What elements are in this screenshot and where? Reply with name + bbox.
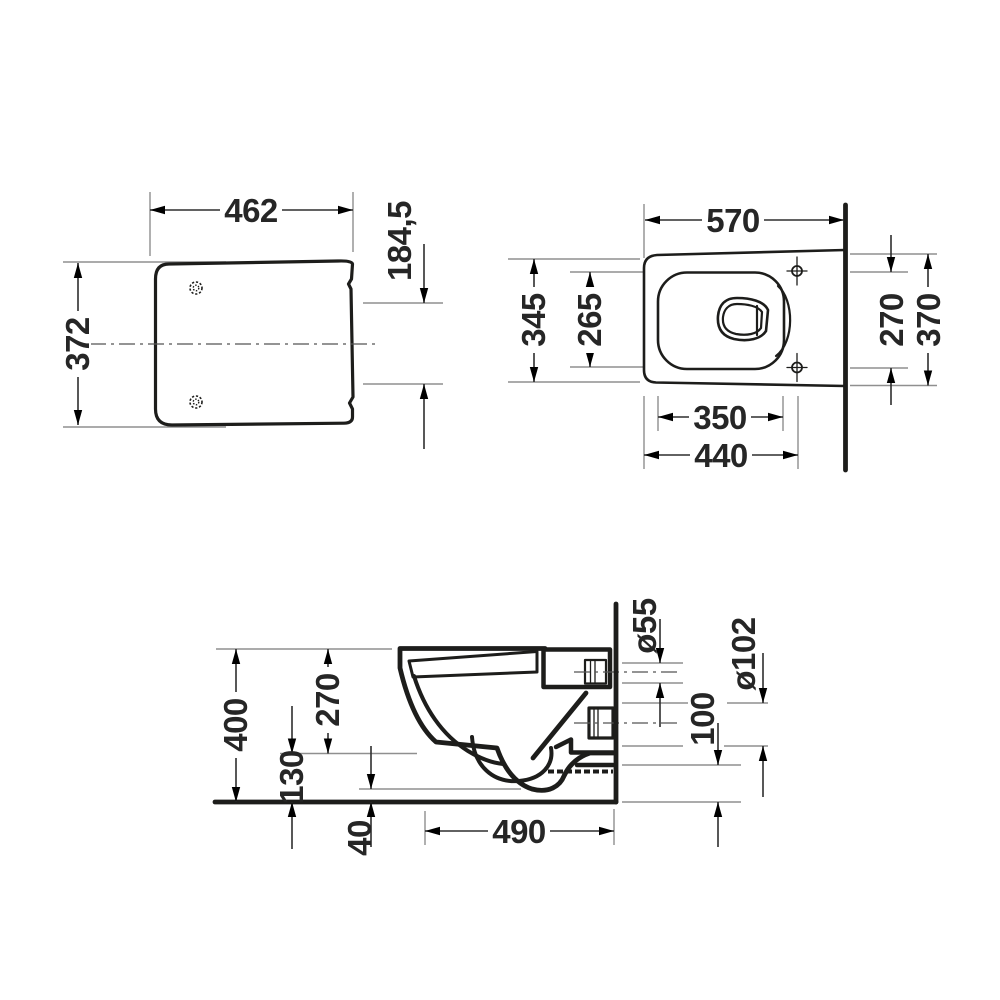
dimension-270-side: 270 [309, 649, 346, 754]
dimension-outlet-diameter: ø102 [725, 617, 767, 797]
dim-label-570: 570 [706, 202, 760, 239]
side-section-view: 400 270 130 [215, 598, 768, 856]
seat-top-view: 462 372 184,5 [59, 192, 443, 449]
dim-label-40: 40 [341, 820, 378, 856]
dim-label-o55: ø55 [626, 598, 663, 654]
dimension-440: 440 [644, 437, 798, 474]
dimension-570: 570 [645, 202, 844, 239]
dimension-400: 400 [217, 649, 254, 802]
dim-label-265: 265 [571, 293, 608, 347]
dim-label-130: 130 [273, 750, 310, 804]
dim-label-462: 462 [224, 192, 278, 229]
dim-label-440: 440 [694, 437, 748, 474]
dimension-100: 100 [684, 692, 722, 847]
bowl-top-view: 570 345 265 [508, 202, 947, 474]
dim-label-372: 372 [59, 317, 96, 371]
dimension-462: 462 [150, 192, 353, 229]
dimension-350: 350 [658, 399, 783, 436]
dim-label-184-5: 184,5 [381, 201, 418, 281]
dim-label-270: 270 [873, 293, 910, 347]
mounting-bracket [556, 740, 613, 753]
dim-label-345: 345 [515, 293, 552, 347]
technical-drawing-page: 462 372 184,5 [0, 0, 1000, 1000]
flush-channel [533, 693, 586, 758]
dim-label-270-side: 270 [309, 673, 346, 727]
dimension-370: 370 [910, 254, 947, 386]
dim-label-490: 490 [492, 813, 546, 850]
dimension-184-5: 184,5 [381, 201, 428, 449]
seat-lid-outline [156, 261, 354, 425]
technical-drawing: 462 372 184,5 [0, 0, 1000, 1000]
dimension-265: 265 [571, 272, 608, 367]
bowl-inner-surface [414, 676, 503, 764]
dim-label-350: 350 [693, 399, 747, 436]
dimension-345: 345 [515, 259, 552, 382]
dimension-270-holes: 270 [873, 235, 910, 405]
dimension-372: 372 [59, 263, 96, 425]
dim-label-370: 370 [910, 293, 947, 347]
dim-label-400: 400 [217, 698, 254, 752]
dim-label-o102: ø102 [725, 617, 762, 690]
dim-label-100: 100 [684, 692, 721, 746]
dimension-490: 490 [425, 813, 614, 850]
seat-section [409, 652, 537, 678]
dimension-130: 130 [273, 706, 310, 849]
